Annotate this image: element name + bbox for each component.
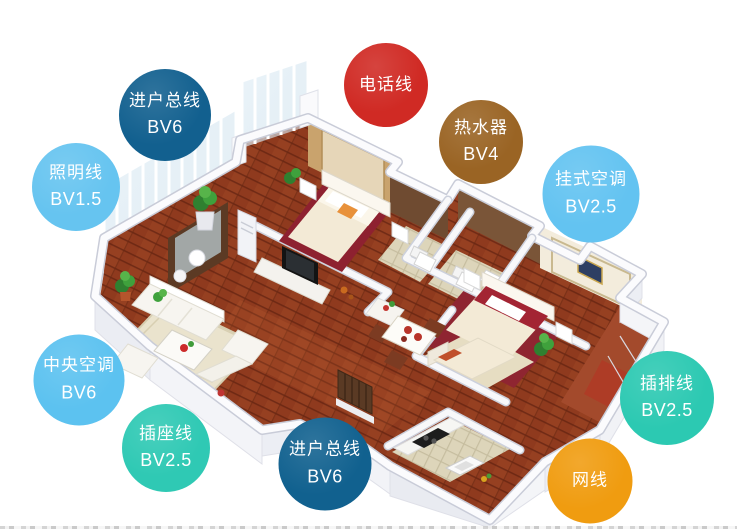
badge-spec: BV2.5	[565, 193, 617, 221]
badge-spec: BV1.5	[50, 186, 102, 214]
badge-telephone-line: 电话线	[344, 43, 428, 127]
bottom-border-strip	[0, 526, 737, 529]
badge-incoming-main-line-top: 进户总线 BV6	[119, 69, 211, 161]
badge-label: 进户总线	[289, 437, 361, 463]
badge-spec: BV2.5	[140, 447, 192, 475]
badge-label: 插座线	[139, 421, 193, 447]
floor-ac-unit	[238, 210, 256, 262]
badge-power-strip-line: 插排线 BV2.5	[620, 351, 714, 445]
badge-lighting-line: 照明线 BV1.5	[32, 143, 120, 231]
infographic-canvas: 进户总线 BV6 照明线 BV1.5 电话线 热水器 BV4 挂式空调 BV2.…	[0, 0, 737, 530]
badge-wall-mounted-ac: 挂式空调 BV2.5	[543, 146, 640, 243]
badge-spec: BV6	[307, 463, 343, 491]
badge-spec: BV6	[61, 379, 97, 407]
badge-network-cable: 网线	[548, 439, 633, 524]
badge-label: 插排线	[640, 371, 694, 397]
badge-water-heater: 热水器 BV4	[439, 100, 523, 184]
badge-label: 网线	[572, 468, 608, 494]
badge-label: 挂式空调	[555, 167, 627, 193]
badge-spec: BV4	[463, 141, 499, 169]
balcony-chair	[189, 250, 205, 266]
badge-label: 照明线	[49, 160, 103, 186]
badge-label: 电话线	[359, 72, 413, 98]
badge-socket-line: 插座线 BV2.5	[122, 404, 210, 492]
badge-label: 进户总线	[129, 88, 201, 114]
badge-central-ac: 中央空调 BV6	[34, 335, 125, 426]
badge-label: 中央空调	[43, 353, 115, 379]
badge-incoming-main-line-bottom: 进户总线 BV6	[279, 418, 372, 511]
badge-spec: BV2.5	[641, 397, 693, 425]
badge-label: 热水器	[454, 115, 508, 141]
badge-spec: BV6	[147, 114, 183, 142]
